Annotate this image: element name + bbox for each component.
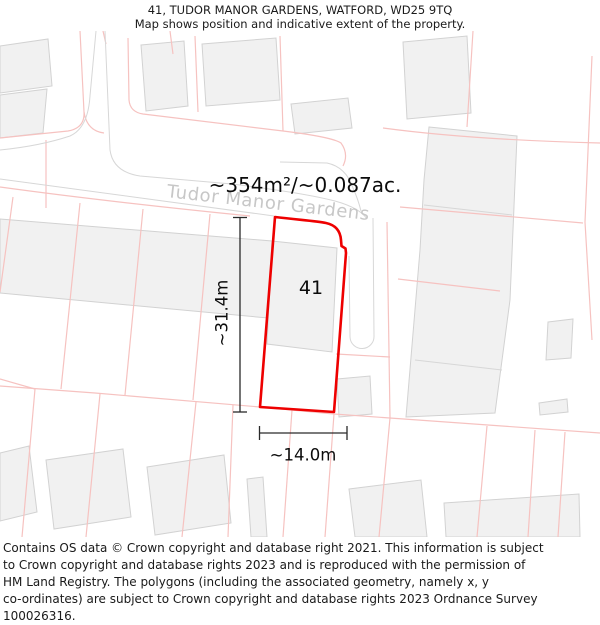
copyright-line: 100026316. (3, 608, 600, 625)
copyright-line: HM Land Registry. The polygons (includin… (3, 574, 600, 591)
copyright-line: co-ordinates) are subject to Crown copyr… (3, 591, 600, 608)
width-dimension-label: ~14.0m (270, 446, 337, 465)
height-dimension-label: ~31.4m (213, 280, 232, 347)
page-subtitle: Map shows position and indicative extent… (0, 17, 600, 31)
copyright-line: to Crown copyright and database rights 2… (3, 557, 600, 574)
page-title: 41, TUDOR MANOR GARDENS, WATFORD, WD25 9… (0, 0, 600, 17)
plot-number-label: 41 (299, 277, 323, 299)
property-map-page: 41, TUDOR MANOR GARDENS, WATFORD, WD25 9… (0, 0, 600, 625)
copyright-line: Contains OS data © Crown copyright and d… (3, 540, 600, 557)
area-label: ~354m²/~0.087ac. (209, 173, 402, 197)
map-canvas (0, 0, 600, 625)
copyright-footer: Contains OS data © Crown copyright and d… (0, 537, 600, 625)
map-header: 41, TUDOR MANOR GARDENS, WATFORD, WD25 9… (0, 0, 600, 31)
